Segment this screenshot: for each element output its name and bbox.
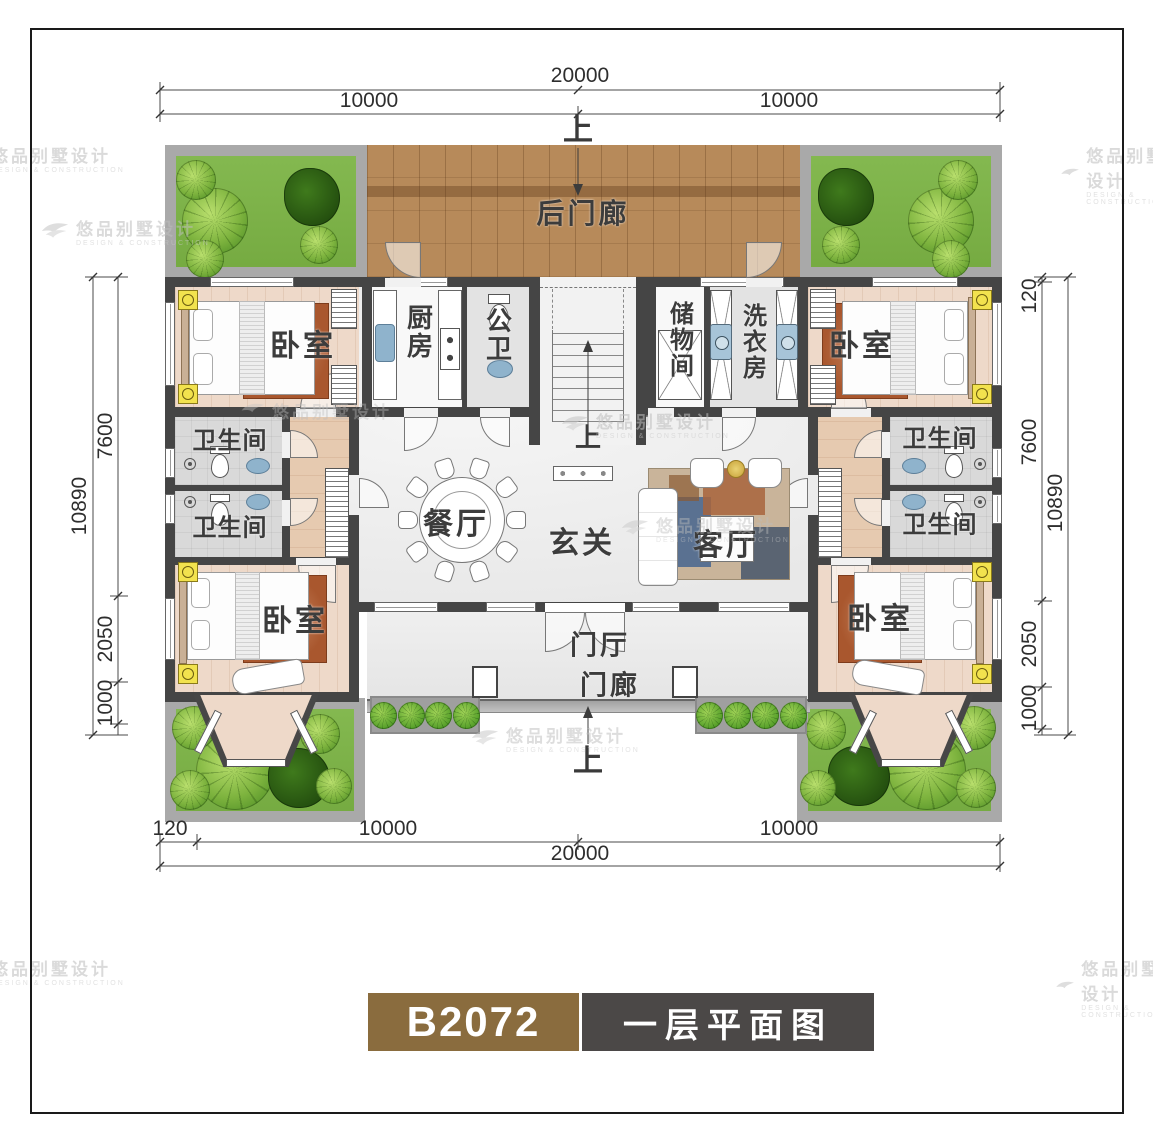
sheet-border	[30, 28, 1124, 1114]
floor-plan-sheet: 20000 10000 10000 120 10000 10000 20000 …	[0, 0, 1153, 1140]
